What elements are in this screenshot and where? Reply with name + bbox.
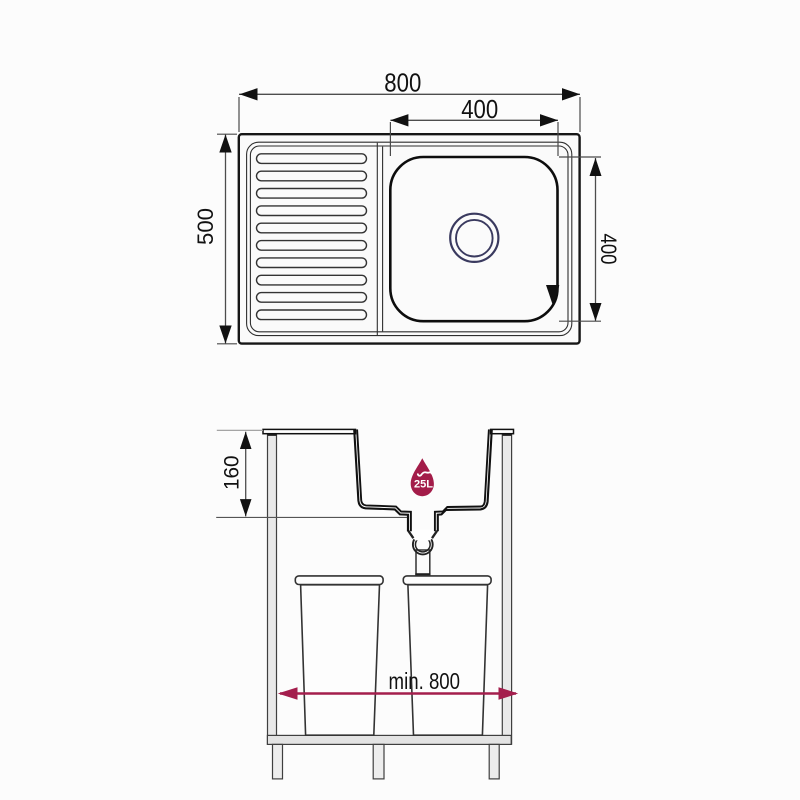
svg-text:400: 400 [596, 234, 621, 265]
svg-text:25L: 25L [414, 478, 433, 490]
svg-text:min. 800: min. 800 [389, 668, 461, 694]
svg-text:400: 400 [461, 96, 498, 124]
svg-text:800: 800 [384, 70, 421, 98]
svg-text:500: 500 [193, 208, 218, 245]
svg-text:160: 160 [219, 456, 243, 491]
